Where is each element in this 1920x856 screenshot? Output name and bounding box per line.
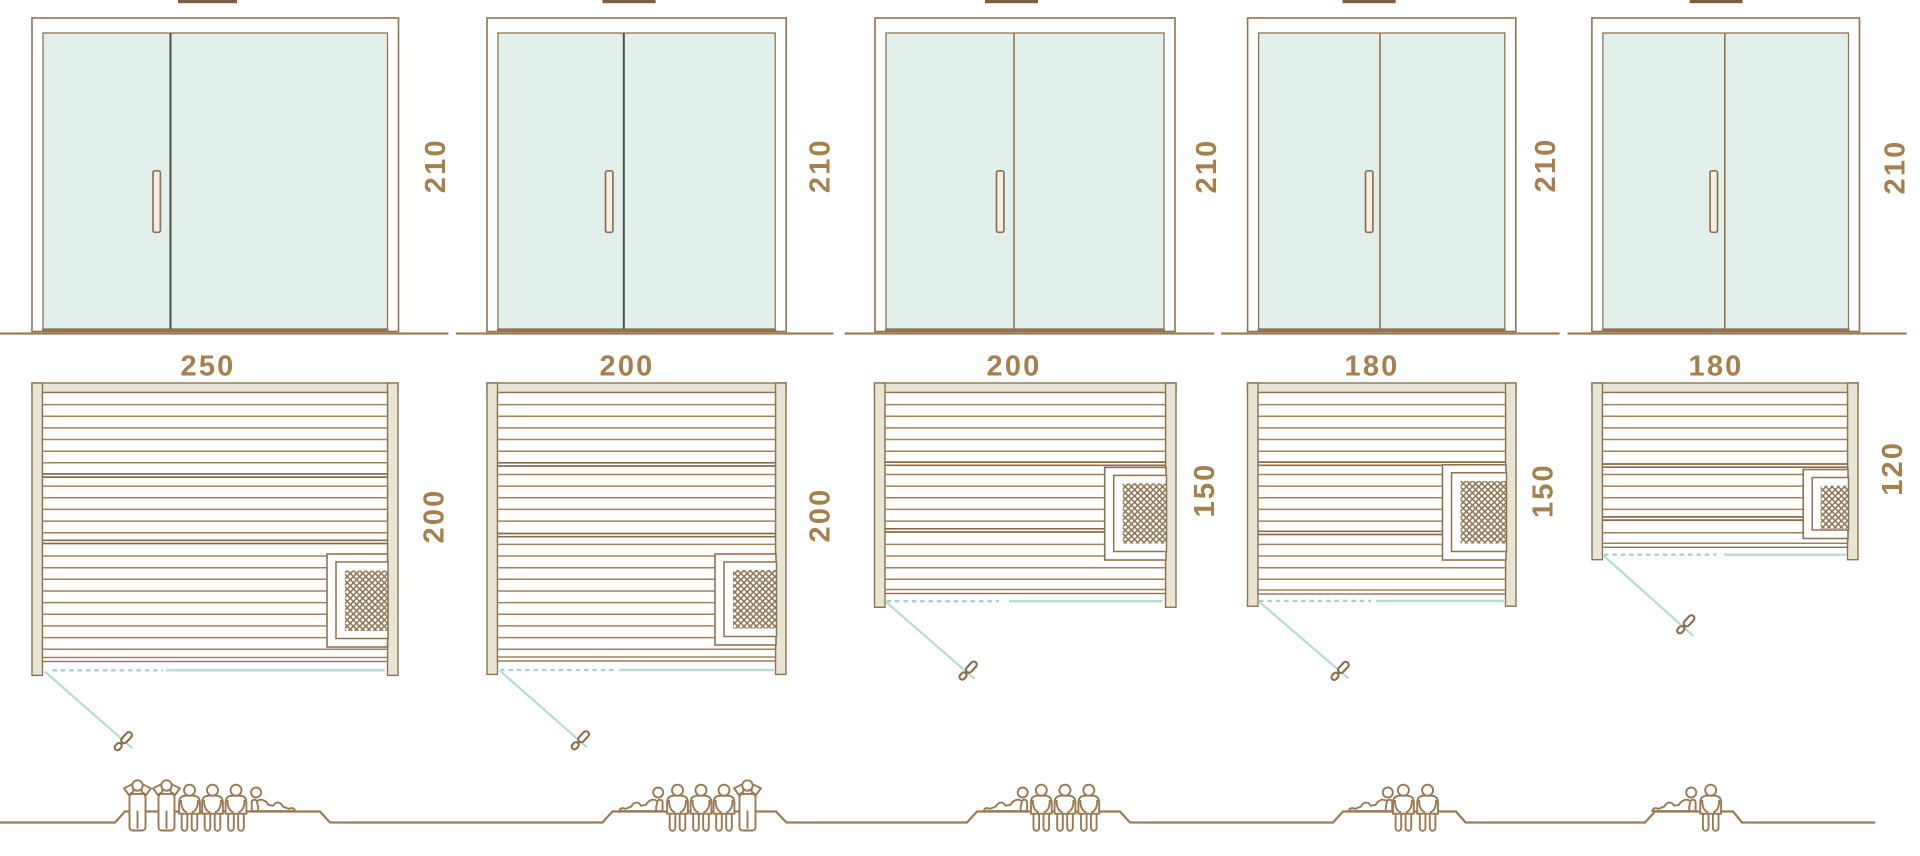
svg-text:210: 210 bbox=[1530, 138, 1562, 193]
svg-text:180: 180 bbox=[1689, 351, 1744, 383]
svg-text:150: 150 bbox=[1189, 463, 1221, 518]
svg-text:200: 200 bbox=[987, 351, 1042, 383]
svg-text:210: 210 bbox=[1191, 139, 1223, 194]
svg-text:210: 210 bbox=[1880, 140, 1912, 195]
svg-text:250: 250 bbox=[181, 351, 236, 383]
svg-text:200: 200 bbox=[805, 488, 837, 543]
svg-text:200: 200 bbox=[419, 489, 451, 544]
svg-text:210: 210 bbox=[420, 138, 452, 193]
svg-text:210: 210 bbox=[805, 138, 837, 193]
svg-text:180: 180 bbox=[1345, 351, 1400, 383]
svg-text:120: 120 bbox=[1877, 441, 1909, 496]
svg-text:200: 200 bbox=[600, 351, 655, 383]
svg-text:150: 150 bbox=[1528, 463, 1560, 518]
